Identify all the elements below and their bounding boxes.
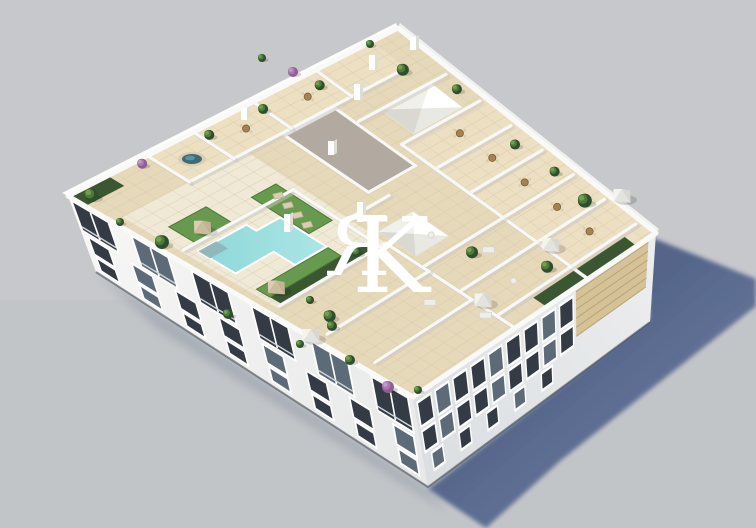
dining-table: [521, 179, 528, 186]
chair: [301, 98, 304, 101]
tree-highlight: [156, 237, 161, 242]
chair: [240, 130, 243, 133]
chimney-pillar-side: [416, 35, 419, 50]
architectural-render: R K: [0, 0, 756, 528]
chair: [453, 129, 456, 132]
tree-highlight: [307, 297, 310, 300]
chimney-pillar-side: [360, 82, 363, 100]
chair: [496, 159, 499, 162]
chair: [240, 124, 243, 127]
tree-highlight: [117, 219, 120, 222]
chair: [593, 233, 596, 236]
chair: [593, 227, 596, 230]
tree-highlight: [353, 248, 357, 252]
chair: [453, 135, 456, 138]
chimney-pillar-side: [375, 53, 378, 70]
chimney-pillar: [354, 84, 360, 100]
chimney-pillar: [328, 141, 334, 155]
chair: [311, 92, 314, 95]
chimney-pillar: [410, 37, 416, 50]
tree-highlight: [579, 195, 584, 200]
chair: [250, 130, 253, 133]
dining-table: [489, 154, 496, 161]
chimney-pillar: [357, 202, 363, 222]
outdoor-sofa: [483, 247, 495, 253]
dining-table: [554, 203, 561, 210]
round-table: [511, 278, 517, 284]
render-canvas: [0, 0, 756, 528]
tree-highlight: [415, 387, 418, 390]
tree-highlight: [297, 341, 300, 344]
chair: [463, 135, 466, 138]
chair: [561, 202, 564, 205]
chimney-pillar-side: [363, 200, 366, 222]
tree-highlight: [467, 248, 472, 253]
chair: [518, 184, 521, 187]
chair: [518, 178, 521, 181]
round-table: [428, 232, 434, 238]
tree-highlight: [367, 41, 370, 44]
tree-highlight: [325, 311, 330, 316]
tree-highlight: [205, 131, 209, 135]
tree-highlight: [398, 65, 403, 70]
tree-highlight: [383, 382, 388, 387]
chair: [528, 184, 531, 187]
dining-table: [456, 130, 463, 137]
chair: [486, 153, 489, 156]
chair: [250, 124, 253, 127]
chimney-pillar: [369, 55, 375, 70]
chair: [301, 92, 304, 95]
chimney-pillar-side: [290, 212, 293, 232]
tree-highlight: [138, 160, 142, 164]
tree-highlight: [453, 85, 457, 89]
tree-highlight: [224, 310, 228, 314]
chimney-pillar-side: [247, 106, 250, 120]
chair: [463, 129, 466, 132]
chimney-pillar: [241, 108, 247, 120]
tree-highlight: [289, 68, 293, 72]
chair: [583, 227, 586, 230]
jacuzzi-water: [185, 156, 195, 161]
tree-highlight: [346, 356, 350, 360]
dining-table: [243, 125, 250, 132]
tree-highlight: [542, 262, 547, 267]
chair: [486, 159, 489, 162]
chair: [551, 202, 554, 205]
chair: [496, 153, 499, 156]
chair: [561, 208, 564, 211]
chimney-pillar-side: [334, 139, 337, 155]
tree-highlight: [551, 168, 555, 172]
outdoor-sofa: [424, 299, 436, 305]
outdoor-sofa: [479, 312, 491, 318]
tree-highlight: [86, 190, 91, 195]
chimney-pillar: [284, 214, 290, 232]
chair: [551, 208, 554, 211]
tree-highlight: [259, 105, 263, 109]
dining-table: [586, 228, 593, 235]
dining-table: [304, 93, 311, 100]
tree-highlight: [328, 322, 332, 326]
chair: [583, 233, 586, 236]
chair: [311, 98, 314, 101]
tree-highlight: [259, 55, 262, 58]
tree-highlight: [511, 141, 515, 145]
chair: [528, 178, 531, 181]
tree-highlight: [316, 81, 320, 85]
